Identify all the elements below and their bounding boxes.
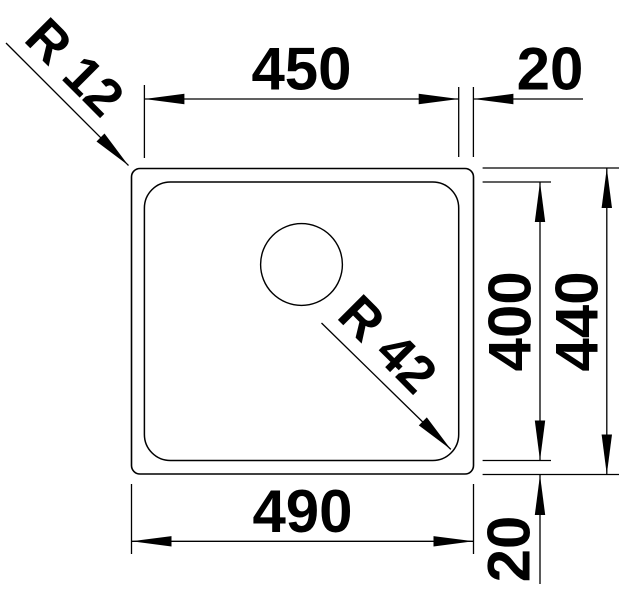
svg-text:450: 450 (251, 36, 351, 103)
svg-text:20: 20 (476, 516, 543, 583)
svg-text:490: 490 (252, 478, 352, 545)
svg-text:440: 440 (544, 271, 611, 371)
svg-text:20: 20 (517, 36, 584, 103)
svg-text:400: 400 (477, 271, 544, 371)
